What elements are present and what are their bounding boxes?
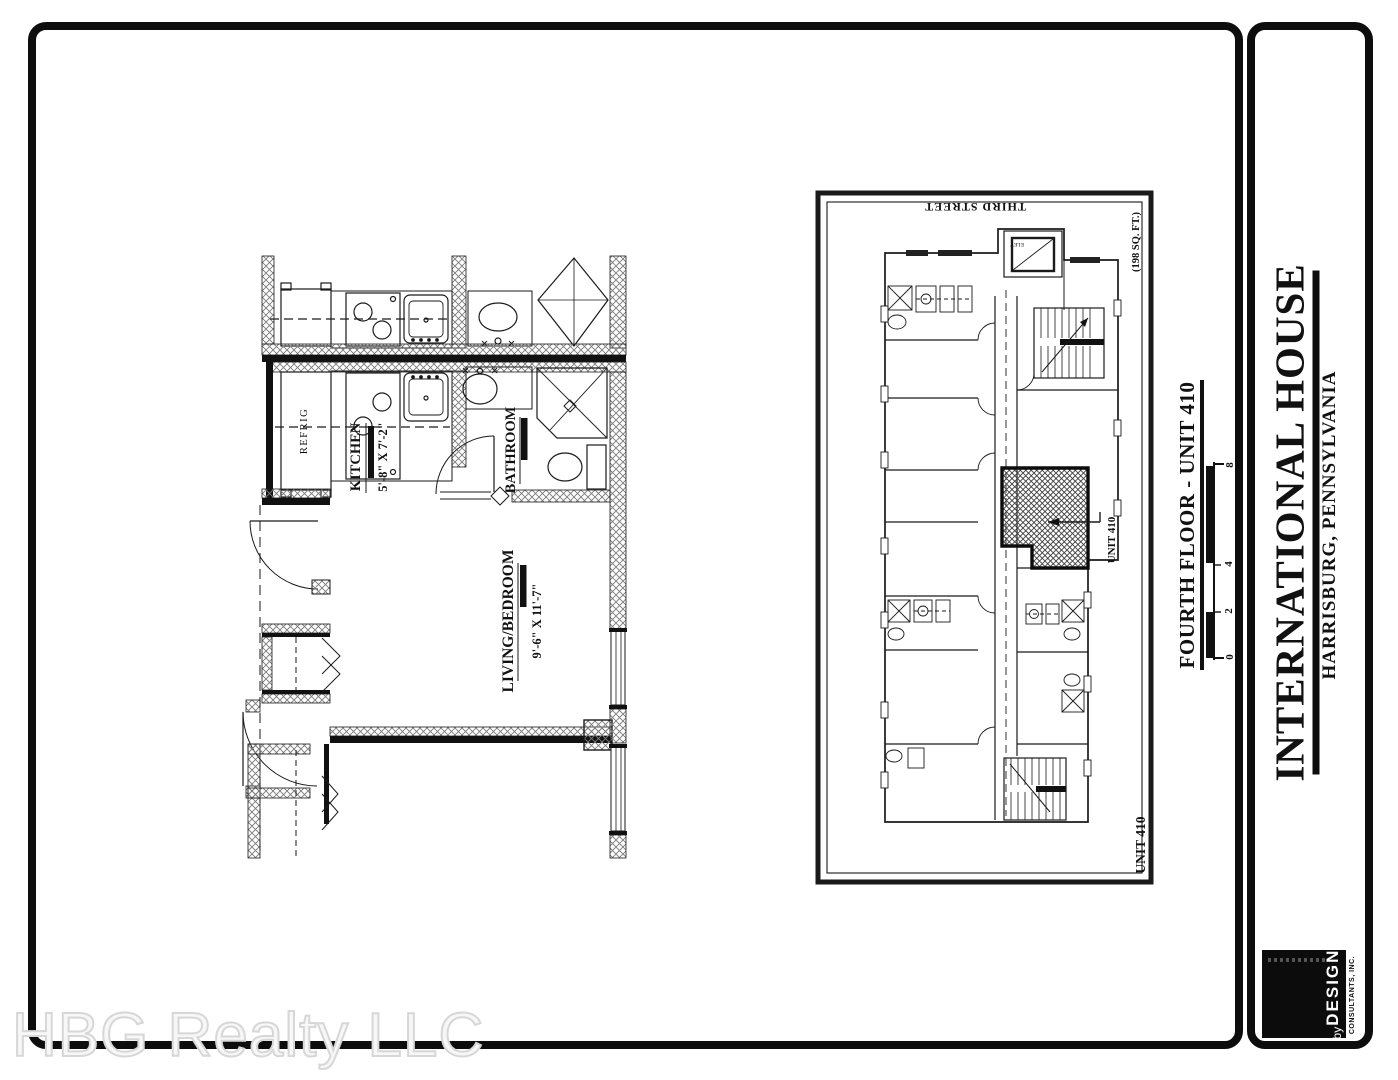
logo-wordmark: byDESIGN <box>1320 950 1346 1038</box>
unit-410-highlight <box>1002 468 1088 568</box>
elevator: ELEV <box>1004 231 1062 277</box>
area-label: (198 SQ. FT.) <box>1131 212 1142 272</box>
toilet <box>548 445 606 489</box>
bathroom-sink <box>463 374 497 404</box>
corridor <box>995 290 1017 820</box>
scale-tick-2: 2 <box>1223 608 1235 614</box>
graphic-scale: 8 4 2 0 <box>1198 452 1242 672</box>
bifold-door <box>322 638 340 674</box>
scale-tick-4: 4 <box>1223 561 1235 567</box>
kitchen-label: KITCHEN <box>348 422 364 491</box>
plan-sheet: REFRIG KITCHEN 5'-8" X 7'-2" <box>0 0 1398 1080</box>
scale-tick-0: 0 <box>1224 654 1236 660</box>
partitions-left <box>885 323 995 744</box>
scale-tick-8: 8 <box>1224 462 1236 468</box>
wall-column <box>584 720 612 750</box>
window-lower <box>609 744 627 835</box>
adjacent-unit-partial <box>262 256 626 348</box>
logo-firm-name: CONSULTANTS, INC. <box>1346 953 1358 1037</box>
shower-upper <box>538 258 608 346</box>
unit-corner-label: UNIT 410 <box>1133 816 1148 873</box>
vanity-counter <box>466 367 532 409</box>
stairs-upper <box>1034 308 1104 378</box>
kitchen-area: REFRIG KITCHEN 5'-8" X 7'-2" <box>275 371 452 497</box>
refrig-label: REFRIG <box>299 408 310 454</box>
bathroom-label: BATHROOM <box>503 406 519 493</box>
unit-callout-label: UNIT 410 <box>1106 516 1118 563</box>
logo-fine-print <box>1268 958 1328 962</box>
watermark: HBG Realty LLC <box>12 1000 484 1071</box>
building-overview-plan: THIRD STREET (198 SQ. FT.) ELEV <box>812 188 1160 888</box>
logo-by: by <box>1330 1027 1346 1040</box>
bydesign-logo: byDESIGN <box>1262 950 1346 1038</box>
elevator-label: ELEV <box>1010 241 1024 247</box>
logo-design: DESIGN <box>1323 949 1343 1026</box>
street-label: THIRD STREET <box>924 200 1026 214</box>
unit-floor-plan: REFRIG KITCHEN 5'-8" X 7'-2" <box>238 248 642 866</box>
closet <box>262 624 340 703</box>
window-upper <box>609 628 627 709</box>
shower <box>537 368 607 438</box>
kitchen-sink <box>404 373 448 421</box>
kitchen-dims: 5'-8" X 7'-2" <box>376 422 390 491</box>
living-dims: 9'-6" X 11'-7" <box>530 584 544 659</box>
bathroom-area: BATHROOM <box>436 367 610 505</box>
project-location: HARRISBURG, PENNSYLVANIA <box>1319 355 1341 695</box>
stairs-lower <box>1004 758 1066 820</box>
living-label: LIVING/BEDROOM <box>500 549 517 692</box>
exterior-wall-right <box>609 372 627 858</box>
overview-border <box>818 193 1151 882</box>
project-name: INTERNATIONAL HOUSE <box>1267 271 1320 775</box>
